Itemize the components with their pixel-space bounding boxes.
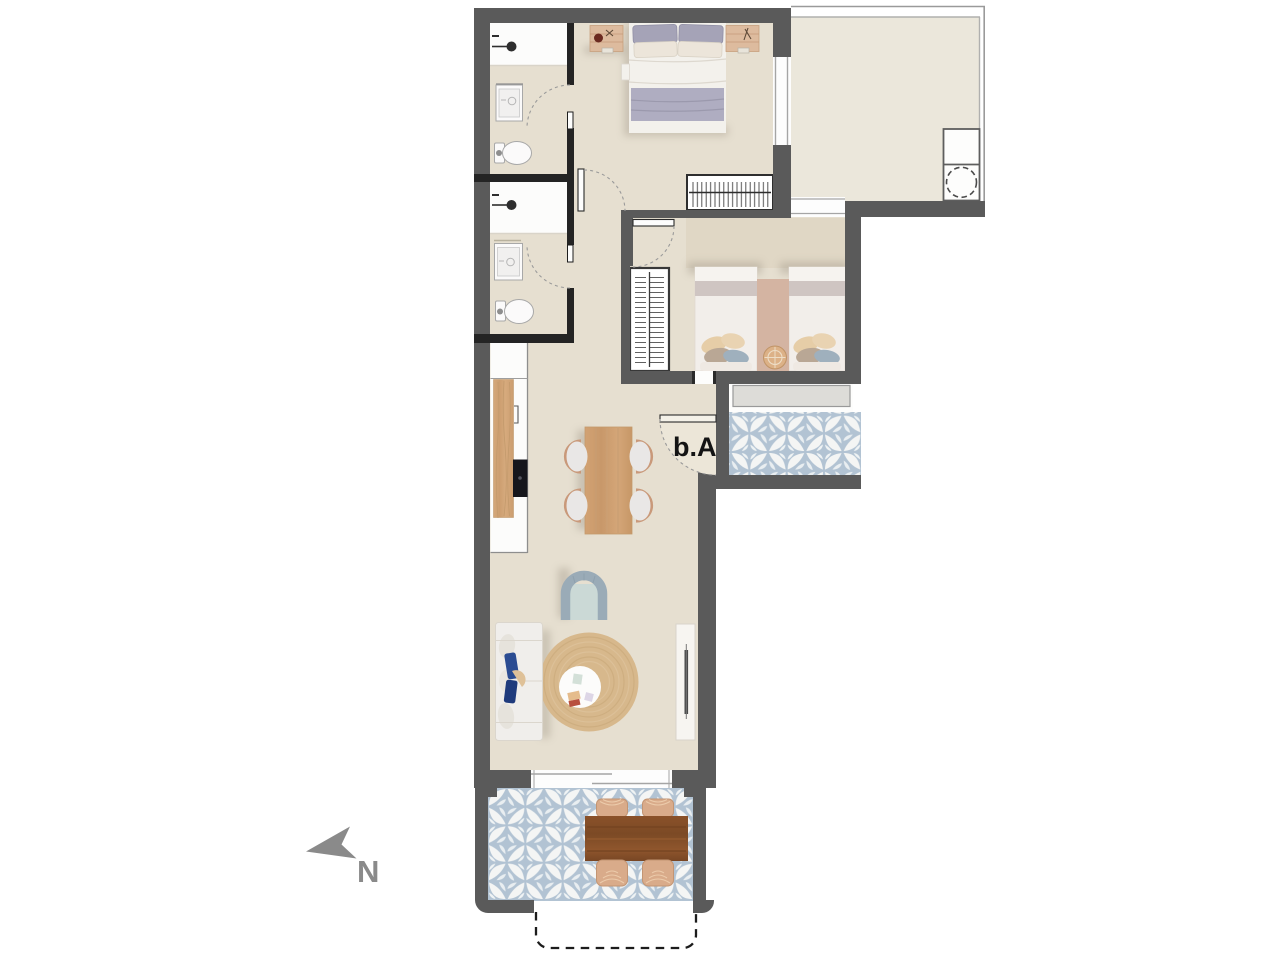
svg-text:N: N [357,854,379,889]
svg-text:b.A: b.A [673,432,717,462]
